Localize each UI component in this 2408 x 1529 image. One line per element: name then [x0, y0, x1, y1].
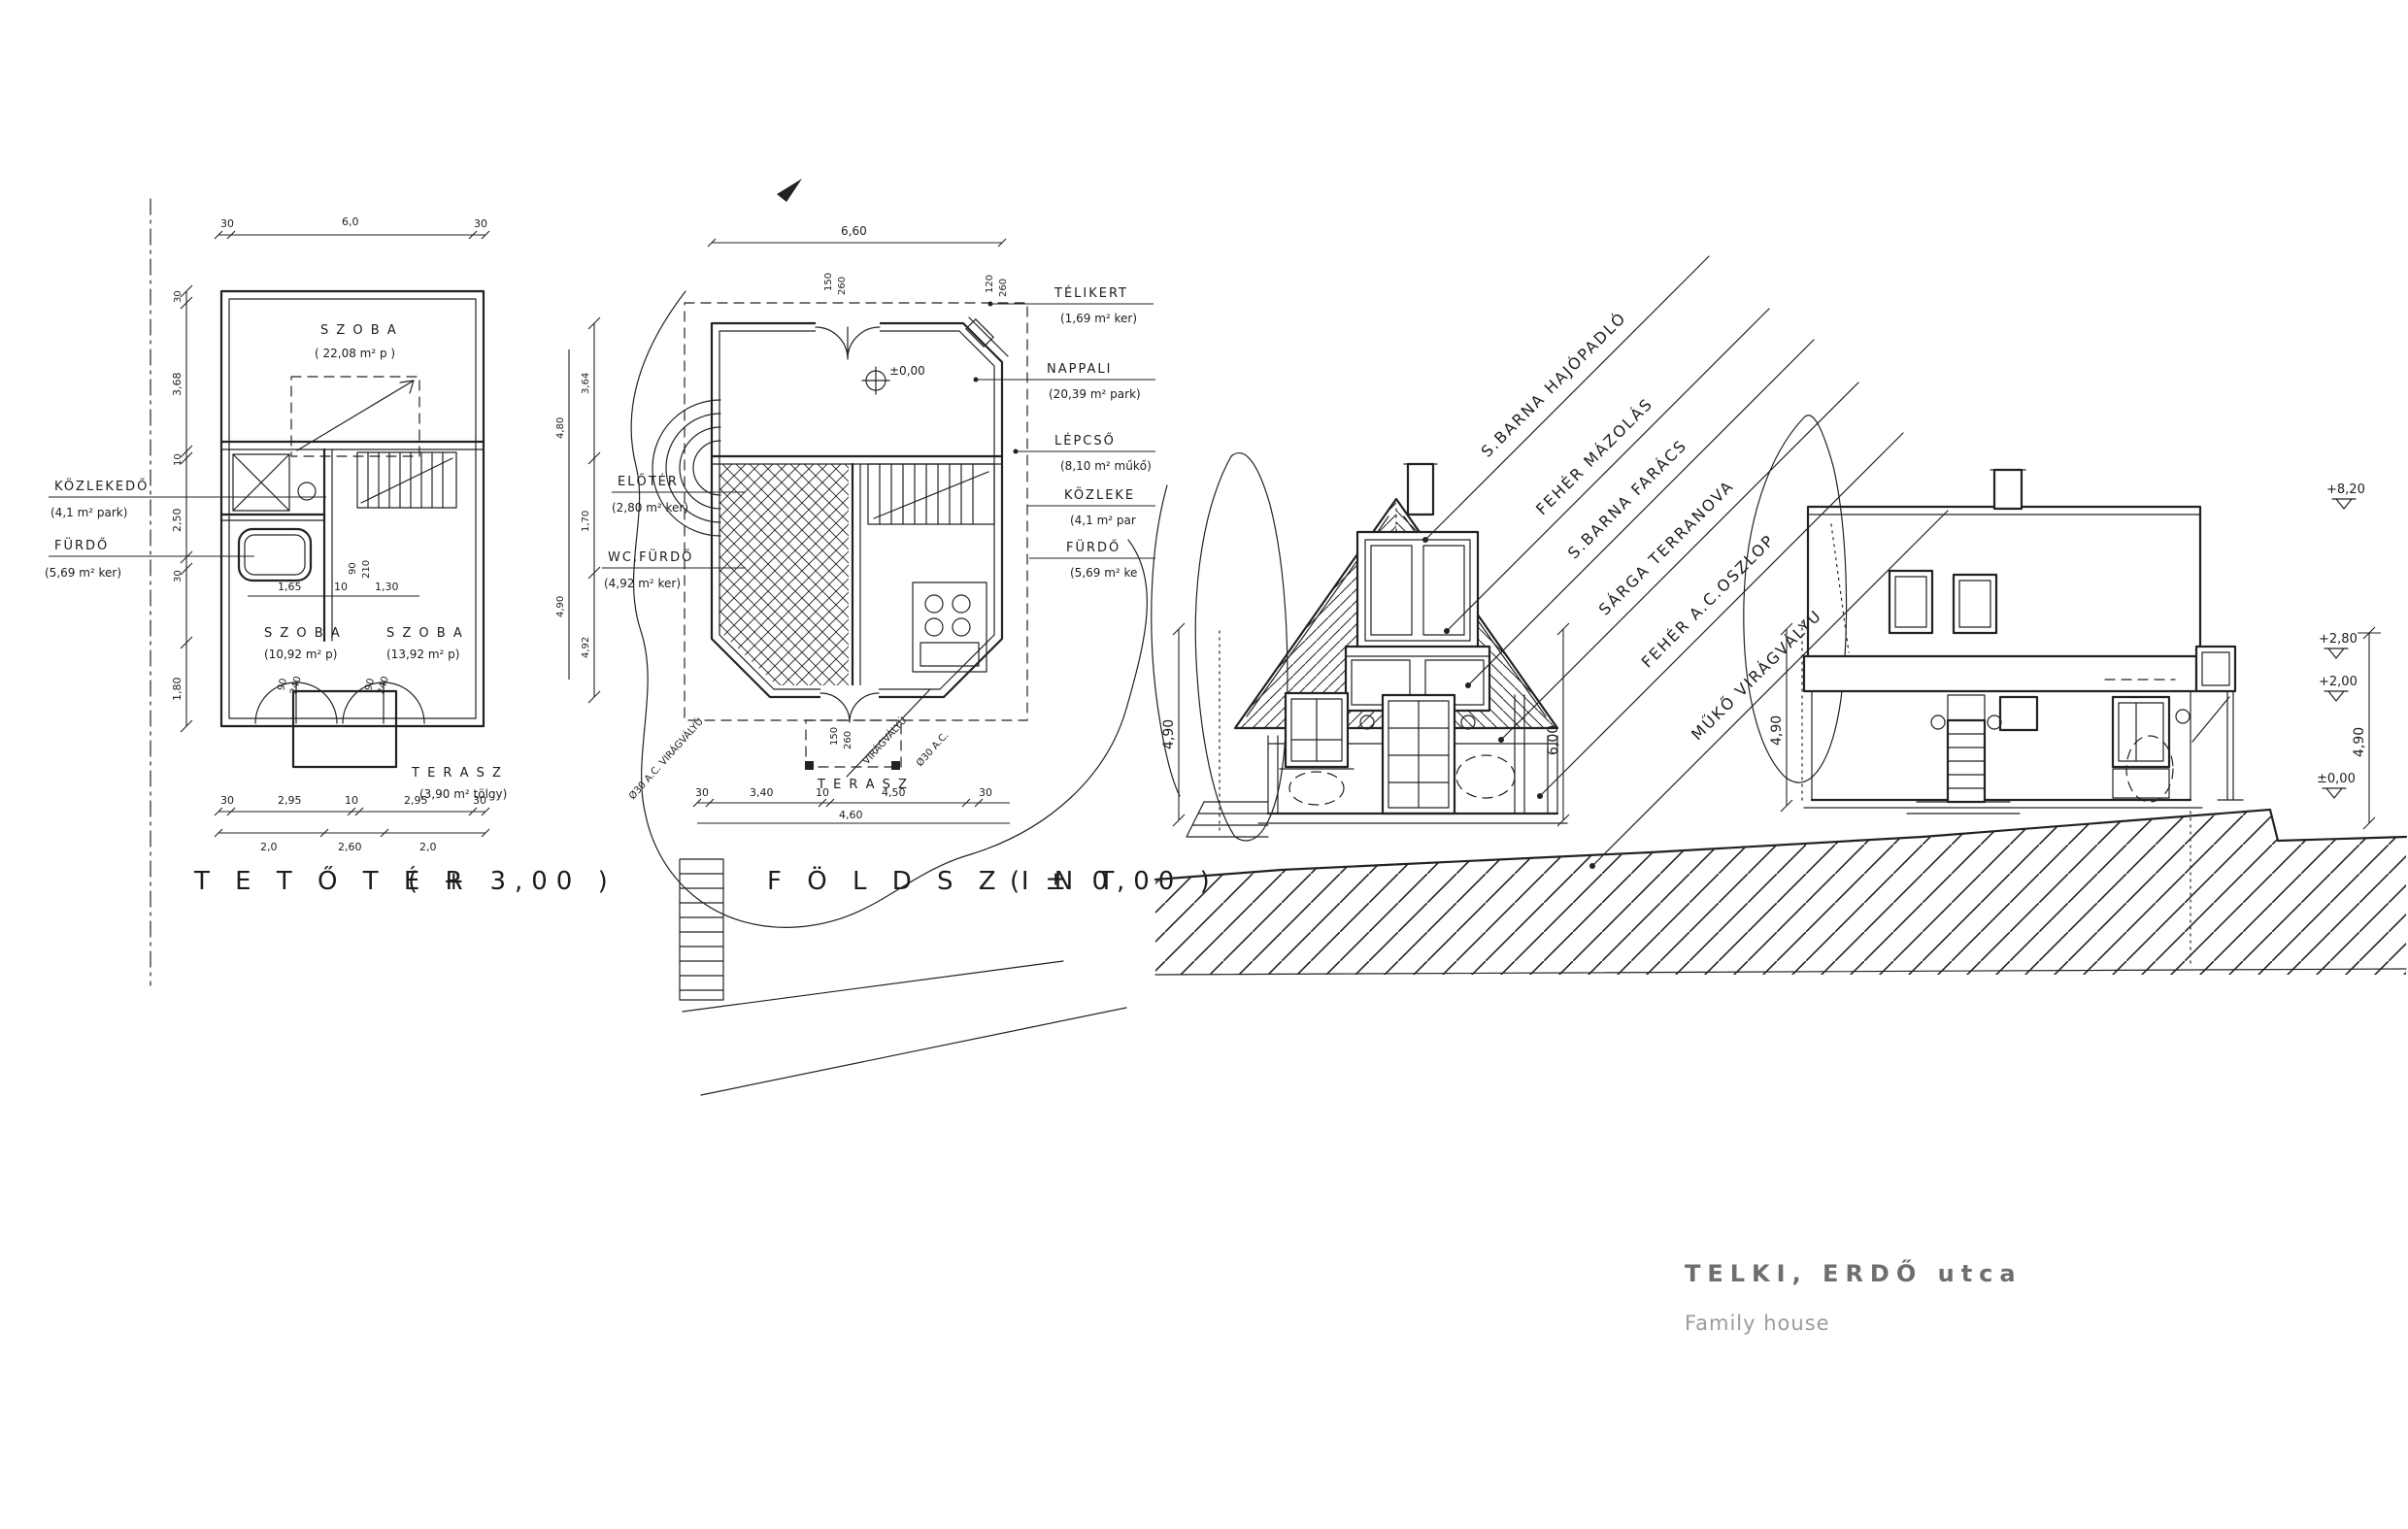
dim-b1-30a: 30: [220, 794, 234, 807]
room-label-eloter: ELŐTÉR: [618, 474, 679, 489]
dim-top-30b: 30: [474, 217, 487, 230]
dim-fl-170: 1,70: [581, 511, 591, 532]
dim-side-490-left: 4,90: [1769, 715, 1785, 746]
front-door: [1383, 695, 1455, 814]
dim-b1-295b: 2,95: [404, 794, 428, 807]
room-area-furdo-f: (5,69 m² ke: [1070, 566, 1137, 580]
kitchen-fixtures: [913, 582, 987, 672]
shrub-left: [1289, 772, 1344, 805]
room-label-lepcso: LÉPCSŐ: [1054, 433, 1116, 449]
level-200: +2,00: [2319, 675, 2358, 689]
shower: [233, 454, 289, 511]
dim-left-368: 3,68: [171, 373, 184, 397]
room-area-kozlekedo: (4,1 m² park): [50, 506, 127, 519]
dim-fb1-340: 3,40: [750, 786, 774, 799]
gable-vent: [2196, 647, 2235, 691]
dim-top-30a: 30: [220, 217, 234, 230]
floor-plan-tetoter: 30 6,0 30 30 3,68 10 2,50 30 1,80 90 210…: [45, 199, 617, 985]
floor-plan-foldszint: 6,60 150 260 120 260 ±0,00: [555, 179, 1219, 1095]
note-ac-right: Ø30 A.C.: [914, 729, 951, 769]
front-steps: [1187, 802, 1268, 837]
dim-fb1-10: 10: [816, 786, 829, 799]
dim-b1-10: 10: [345, 794, 358, 807]
dim-fb2-460: 4,60: [839, 809, 863, 821]
terrace-post-right: [891, 761, 900, 770]
dim-b2-20b: 2,0: [419, 841, 437, 853]
stair-foldszint: [868, 464, 994, 524]
dim-tub-210: 210: [361, 560, 372, 579]
small-hatched-window: [2000, 697, 2037, 730]
room-label-furdo: FÜRDŐ: [54, 537, 109, 553]
shrub-right: [1456, 755, 1515, 798]
dim-fb1-30b: 30: [979, 786, 992, 799]
room-area-eloter: (2,80 m² ker): [612, 501, 688, 515]
pergola-corner: [2176, 691, 2243, 800]
dim-b2-20a: 2,0: [260, 841, 278, 853]
entry-steps: [652, 400, 720, 536]
room-callouts-right: TÉLIKERT (1,69 m² ker) NAPPALI (20,39 m²…: [974, 285, 1156, 580]
garden-stair: [680, 859, 723, 1000]
room-area-kozleke: (4,1 m² par: [1070, 514, 1136, 527]
dim-bath-130: 1,30: [375, 581, 399, 593]
note-trough-left: Ø30 A.C. VIRÁGVÁLYÚ: [626, 715, 706, 802]
stair-tetoter: [357, 452, 456, 508]
dim-bath-10: 10: [334, 581, 348, 593]
room-label-kozlekedo: KÖZLEKEDŐ: [54, 478, 149, 494]
dim-fb1-30a: 30: [695, 786, 709, 799]
tree: [1195, 453, 1288, 841]
dim-top-60: 6,0: [342, 216, 359, 228]
roof-window-1: [1890, 571, 1932, 633]
dim-door-b-240: 240: [376, 675, 391, 695]
dim-door-a-240: 240: [288, 675, 304, 695]
chimney-side: [1990, 470, 2025, 509]
dim-doortop-150: 150: [823, 273, 834, 291]
room-area-wcfurdo: (4,92 m² ker): [604, 577, 681, 590]
dim-left-180: 1,80: [171, 678, 184, 702]
level-mark-foldszint: ±0,00: [889, 364, 925, 378]
room-area-furdo: (5,69 m² ker): [45, 566, 121, 580]
dim-doortop-260: 260: [837, 277, 848, 295]
dim-front-600: 6,00: [1546, 725, 1561, 755]
room-label-kozleke: KÖZLEKE: [1064, 486, 1135, 503]
dim-fl-364: 3,64: [581, 373, 591, 394]
door-corner: [969, 317, 1008, 356]
dim-bath-165: 1,65: [278, 581, 302, 593]
room-area-szoba2: (10,92 m² p): [264, 648, 337, 661]
dim-doorterasz-260: 260: [843, 731, 853, 749]
dim-tub-90: 90: [348, 562, 358, 575]
architectural-drawing: 30 6,0 30 30 3,68 10 2,50 30 1,80 90 210…: [0, 0, 2408, 1529]
dim-door-a-90: 90: [276, 678, 289, 692]
level-280: +2,80: [2319, 632, 2358, 647]
dim-fl-492: 4,92: [581, 637, 591, 658]
dim-b2-260: 2,60: [338, 841, 362, 853]
dim-door-b-90: 90: [363, 678, 377, 692]
project-title: TELKI, ERDŐ utca: [1685, 1258, 2023, 1287]
terrace-hatch: [293, 691, 396, 767]
room-area-lepcso: (8,10 m² műkő): [1060, 459, 1152, 473]
dim-side-490-right: 4,90: [2352, 727, 2367, 757]
dim-front-490: 4,90: [1161, 719, 1177, 749]
level-000: ±0,00: [2317, 772, 2356, 786]
dim-left-10: 10: [173, 453, 184, 466]
room-label-telikert: TÉLIKERT: [1053, 285, 1128, 301]
door-opening-terasz: [820, 685, 879, 701]
tiled-roof: [1808, 507, 2200, 658]
dim-top-660: 6,60: [841, 224, 867, 238]
level-820: +8,20: [2326, 482, 2365, 497]
north-arrow-icon: [777, 179, 802, 202]
title-block: TELKI, ERDŐ utca Family house: [1685, 1258, 2023, 1335]
room-label-szoba1: S Z O B A: [320, 323, 398, 338]
room-area-telikert: (1,69 m² ker): [1060, 312, 1137, 325]
dim-doorterasz-150: 150: [829, 727, 840, 746]
ground-hatch: [1155, 810, 2406, 975]
room-area-szoba3: (13,92 m² p): [386, 648, 459, 661]
upper-window: [1357, 532, 1478, 648]
dim-fl-490: 4,90: [555, 596, 566, 617]
room-label-nappali: NAPPALI: [1047, 362, 1112, 377]
front-window: [1280, 693, 1354, 769]
dim-left-250: 2,50: [171, 509, 184, 533]
note-trough-right: VIRÁGVÁLYÚ: [860, 715, 910, 767]
dim-left-30a: 30: [173, 290, 184, 303]
side-door: [1948, 695, 1985, 802]
elevation-front: 4,90 6,00 S.BARNA HAJÓPADLÓ FEHÉR MÁZOLÁ…: [1152, 256, 1948, 869]
roof-window-2: [1954, 575, 1996, 633]
dim-doorcorner-120: 120: [985, 275, 995, 293]
elevation-side: 4,90 +8,20 +2,80 +2,00 ±0,00 4,90: [1744, 415, 2381, 829]
material-annotations: S.BARNA HAJÓPADLÓ FEHÉR MÁZOLÁS S.BARNA …: [1422, 256, 1948, 869]
room-label-szoba2: S Z O B A: [264, 626, 342, 641]
side-window: [2113, 697, 2173, 802]
drawing-sheet: 30 6,0 30 30 3,68 10 2,50 30 1,80 90 210…: [0, 0, 2408, 1529]
room-area-nappali: (20,39 m² park): [1049, 387, 1141, 401]
dim-b1-295a: 2,95: [278, 794, 302, 807]
side-lamp-left: [1931, 715, 1945, 729]
dim-fl-480: 4,80: [555, 417, 566, 439]
dim-b1-30b: 30: [473, 794, 486, 807]
project-subtitle: Family house: [1685, 1312, 1830, 1335]
dim-fb1-450: 4,50: [882, 786, 906, 799]
bathtub: [239, 529, 311, 581]
room-label-szoba3: S Z O B A: [386, 626, 464, 641]
room-label-terasz: T E R A S Z: [411, 766, 503, 781]
tile-floor: [719, 464, 849, 685]
room-area-terasz: (3,90 m² tölgy): [419, 787, 507, 801]
tree-side: [1744, 415, 1847, 782]
plan-level-tetoter: ( + 3,00 ): [408, 867, 617, 896]
chimney-front: [1404, 464, 1437, 515]
fascia: [1804, 656, 2196, 691]
room-area-szoba1: ( 22,08 m² p ): [315, 347, 395, 360]
room-label-furdo-f: FÜRDŐ: [1066, 539, 1120, 555]
dim-left-30b: 30: [173, 570, 184, 582]
terrace-post-left: [805, 761, 814, 770]
dim-doorcorner-260: 260: [998, 279, 1009, 297]
room-label-wcfurdo: WC,FÜRDŐ: [608, 548, 693, 565]
